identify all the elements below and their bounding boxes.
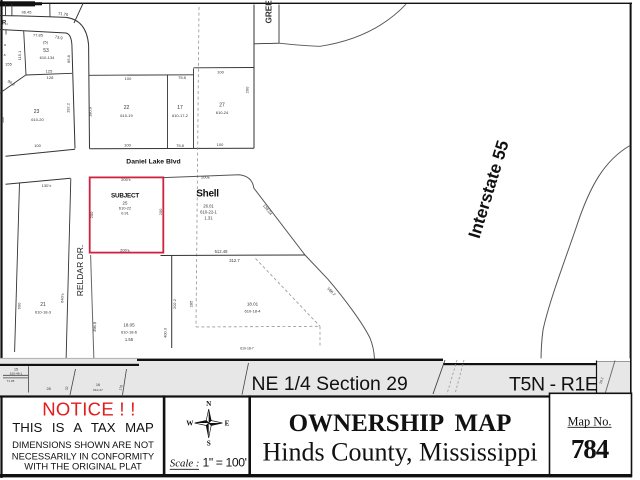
svg-text:100: 100 xyxy=(125,76,132,81)
svg-text:a: a xyxy=(4,53,6,57)
svg-text:610-20: 610-20 xyxy=(31,117,44,122)
svg-text:200: 200 xyxy=(158,208,163,215)
svg-text:512.48: 512.48 xyxy=(215,249,228,254)
svg-text:610-18-4: 610-18-4 xyxy=(244,309,261,314)
svg-text:100: 100 xyxy=(34,143,41,148)
svg-text:26.01: 26.01 xyxy=(203,204,214,209)
svg-text:610-47: 610-47 xyxy=(93,388,103,392)
svg-text:R.: R. xyxy=(2,21,8,27)
svg-text:22: 22 xyxy=(124,105,130,111)
svg-text:85.8: 85.8 xyxy=(66,54,71,63)
svg-text:17: 17 xyxy=(177,105,183,111)
svg-text:610-17-2: 610-17-2 xyxy=(172,113,189,118)
svg-text:GREE: GREE xyxy=(264,0,273,24)
svg-text:75.8: 75.8 xyxy=(176,143,185,148)
svg-text:610-22-1: 610-22-1 xyxy=(200,210,217,215)
svg-text:400.3: 400.3 xyxy=(163,327,168,338)
svg-text:200'±: 200'± xyxy=(121,177,131,182)
svg-text:610-18-3: 610-18-3 xyxy=(35,310,52,315)
svg-text:610-18-6: 610-18-6 xyxy=(121,330,138,335)
svg-text:S: S xyxy=(207,439,211,447)
svg-text:NE 1/4 Section 29: NE 1/4 Section 29 xyxy=(252,373,408,395)
svg-text:18.05: 18.05 xyxy=(123,323,135,328)
svg-text:610-46-1: 610-46-1 xyxy=(10,372,23,376)
svg-text:130'±: 130'± xyxy=(42,183,52,188)
svg-text:125: 125 xyxy=(46,68,53,73)
svg-text:75.8: 75.8 xyxy=(178,75,187,80)
svg-text:600: 600 xyxy=(17,302,22,309)
svg-text:200±: 200± xyxy=(201,174,211,179)
svg-text:71.05: 71.05 xyxy=(7,379,15,383)
svg-text:398.9: 398.9 xyxy=(92,321,97,332)
svg-text:28: 28 xyxy=(46,387,50,391)
svg-text:200: 200 xyxy=(245,86,250,93)
svg-text:192.2: 192.2 xyxy=(66,102,71,113)
svg-text:OWNERSHIP MAP: OWNERSHIP MAP xyxy=(289,410,512,437)
svg-text:1.31: 1.31 xyxy=(204,216,213,221)
svg-text:180.9: 180.9 xyxy=(88,106,93,117)
svg-text:96.45: 96.45 xyxy=(21,10,32,15)
svg-text:285: 285 xyxy=(189,300,194,307)
svg-text:THIS IS A TAX MAP: THIS IS A TAX MAP xyxy=(12,420,154,435)
svg-text:E: E xyxy=(225,420,230,428)
svg-text:202.2: 202.2 xyxy=(172,298,177,309)
svg-text:a: a xyxy=(4,43,6,47)
svg-text:640'±: 640'± xyxy=(60,292,65,302)
svg-text:100: 100 xyxy=(124,143,131,148)
svg-text:16: 16 xyxy=(96,383,100,387)
svg-text:Hinds County, Mississippi: Hinds County, Mississippi xyxy=(263,438,538,467)
svg-text:18.01: 18.01 xyxy=(247,302,259,307)
svg-text:DIMENSIONS SHOWN ARE NOT: DIMENSIONS SHOWN ARE NOT xyxy=(12,439,154,450)
svg-text:53: 53 xyxy=(43,48,49,54)
svg-text:27: 27 xyxy=(219,103,225,109)
svg-text:312.7: 312.7 xyxy=(229,258,240,263)
svg-text:23: 23 xyxy=(34,109,40,115)
svg-text:Scale :: Scale : xyxy=(170,458,200,470)
svg-text:77.85: 77.85 xyxy=(33,33,44,38)
svg-text:0.91: 0.91 xyxy=(121,210,130,215)
svg-text:SUBJECT: SUBJECT xyxy=(111,192,139,199)
svg-text:784: 784 xyxy=(571,434,609,464)
svg-text:Shell: Shell xyxy=(196,189,219,200)
svg-text:610-18-7: 610-18-7 xyxy=(240,347,254,351)
svg-text:W: W xyxy=(186,420,194,428)
svg-text:1.55: 1.55 xyxy=(125,337,134,342)
svg-text:Daniel Lake Blvd: Daniel Lake Blvd xyxy=(126,159,180,166)
svg-text:100: 100 xyxy=(217,70,224,75)
svg-text:T5N - R1E: T5N - R1E xyxy=(509,374,598,396)
svg-text:RELDAR DR.: RELDAR DR. xyxy=(75,245,85,296)
svg-text:115.1: 115.1 xyxy=(17,50,22,60)
svg-text:200'±: 200'± xyxy=(120,248,130,253)
svg-text:155: 155 xyxy=(5,62,12,67)
svg-text:(5): (5) xyxy=(43,40,49,45)
svg-text:1" = 100': 1" = 100' xyxy=(203,455,247,469)
svg-text:200: 200 xyxy=(89,211,94,218)
svg-text:610-134: 610-134 xyxy=(40,55,55,60)
svg-text:Map No.: Map No. xyxy=(567,415,611,429)
svg-text:610-19: 610-19 xyxy=(120,113,133,118)
svg-text:100: 100 xyxy=(217,142,224,147)
svg-text:160: 160 xyxy=(1,117,5,123)
svg-text:N: N xyxy=(206,400,212,408)
svg-text:WITH THE ORIGINAL PLAT: WITH THE ORIGINAL PLAT xyxy=(24,461,142,472)
svg-text:610-24: 610-24 xyxy=(216,110,229,115)
svg-text:NOTICE ! !: NOTICE ! ! xyxy=(42,399,135,420)
svg-text:21: 21 xyxy=(40,302,46,308)
svg-text:128: 128 xyxy=(47,75,54,80)
